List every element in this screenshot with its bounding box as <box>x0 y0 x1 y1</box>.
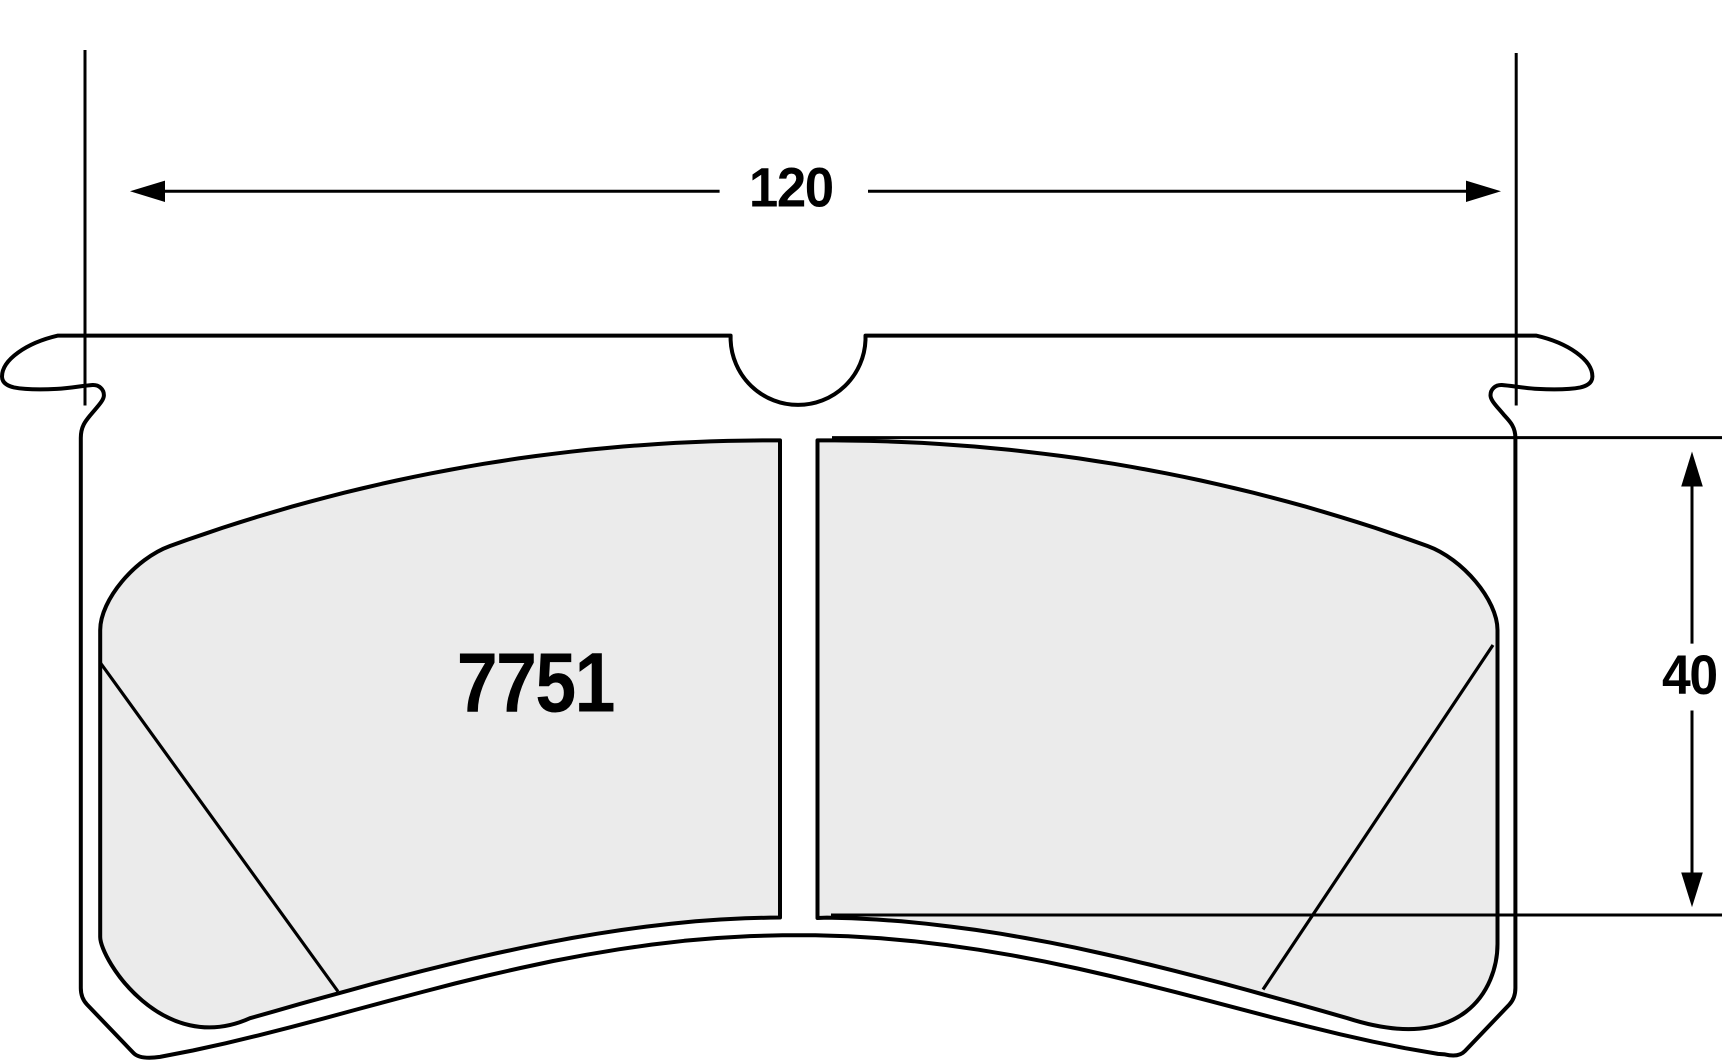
svg-text:120: 120 <box>749 156 833 219</box>
svg-text:7751: 7751 <box>457 635 614 730</box>
svg-text:40: 40 <box>1662 644 1717 706</box>
